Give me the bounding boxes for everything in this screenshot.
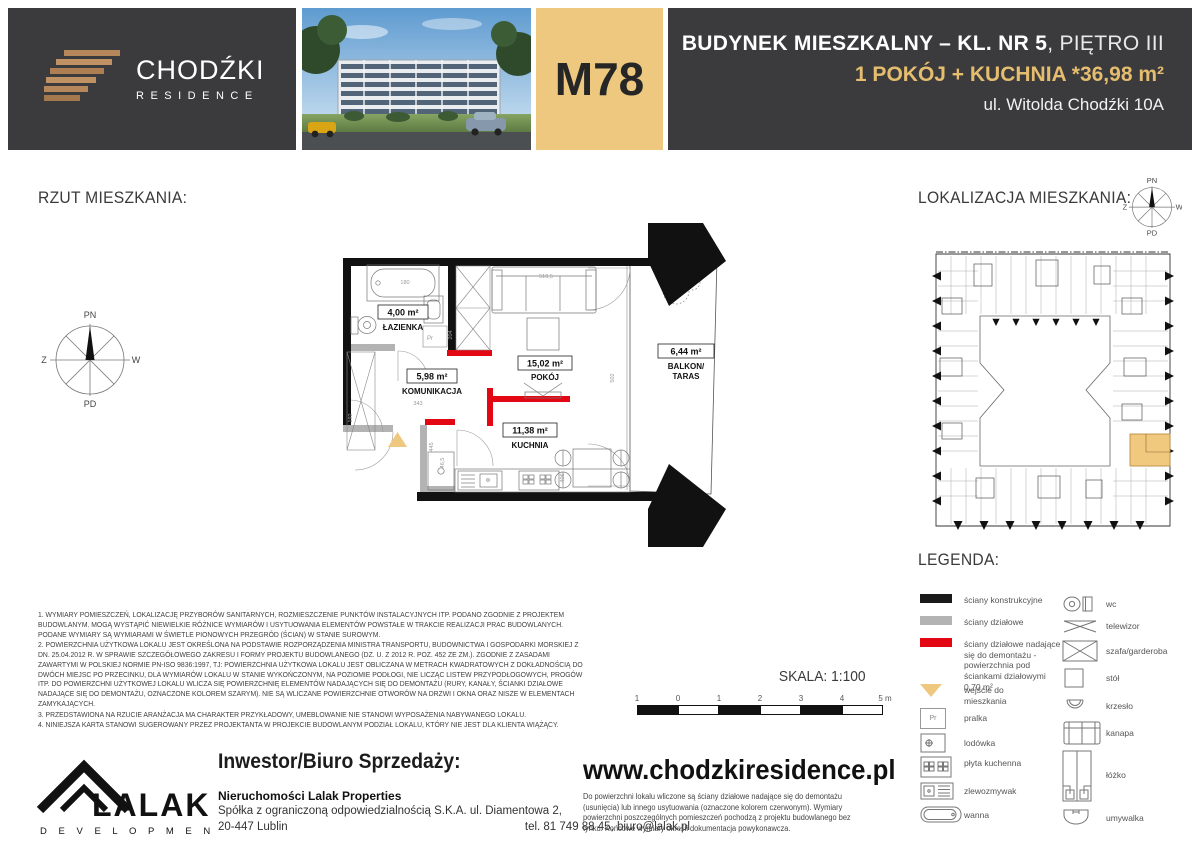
svg-text:406: 406	[560, 473, 566, 482]
compass-needle	[86, 326, 95, 360]
kitchen-counter	[455, 469, 630, 492]
compass-north-label: PN	[1147, 176, 1157, 185]
wc-icon	[1062, 594, 1106, 614]
svg-text:46,5: 46,5	[440, 458, 446, 469]
scale-tick: 3	[799, 694, 803, 703]
note-3: 3. PRZEDSTAWIONA NA RZUCIE ARANŻACJA MA …	[38, 710, 590, 720]
cooktop-icon	[519, 471, 559, 490]
svg-text:5,98 m²: 5,98 m²	[416, 372, 447, 382]
svg-text:4,00 m²: 4,00 m²	[387, 308, 418, 318]
compass-east-label: W	[1176, 202, 1182, 211]
svg-text:BALKON/: BALKON/	[668, 362, 705, 371]
scale-tick: 4	[840, 694, 844, 703]
legend-item: krzesło	[1062, 696, 1192, 716]
plan-section-title: RZUT MIESZKANIA:	[38, 188, 187, 208]
wardrobe-icon	[1062, 640, 1106, 662]
kitchen-fixtures	[428, 449, 630, 492]
compass-south-label: PD	[1147, 228, 1158, 236]
legend-item: kanapa	[1062, 720, 1192, 746]
investor-city: 20-447 Lublin	[218, 821, 288, 833]
svg-text:343: 343	[413, 401, 422, 407]
entrance-marker	[388, 432, 407, 447]
compass-west-label: Z	[41, 355, 47, 365]
washer-label: Pr	[427, 336, 433, 342]
investor-address: Spółka z ograniczoną odpowiedzialnością …	[218, 805, 562, 817]
building-title-bold: BUDYNEK MIESZKALNY – KL. NR 5	[682, 32, 1047, 55]
svg-text:192: 192	[348, 413, 354, 422]
floor-plan: Pr	[338, 214, 740, 558]
svg-text:204: 204	[448, 330, 454, 339]
note-1: 1. WYMIARY POMIESZCZEŃ, LOKALIZACJĘ PRZY…	[38, 610, 590, 639]
legend-item: telewizor	[1062, 618, 1192, 635]
header-title-block: BUDYNEK MIESZKALNY – KL. NR 5, PIĘTRO II…	[668, 8, 1192, 150]
svg-text:KOMUNIKACJA: KOMUNIKACJA	[402, 387, 462, 396]
legend-item: wejście do mieszkania	[920, 684, 1060, 706]
svg-text:TARAS: TARAS	[673, 372, 701, 381]
apartment-card-page: CHODŹKI RESIDENCE	[0, 0, 1200, 848]
wall-partition-swatch	[920, 616, 964, 625]
brand-text: CHODŹKI RESIDENCE	[136, 57, 265, 102]
svg-text:510,5: 510,5	[539, 274, 553, 280]
legend-item: stół	[1062, 668, 1192, 688]
legend-item: Pr pralka	[920, 708, 1060, 729]
compass-north-label: PN	[84, 310, 97, 320]
table-icon	[527, 318, 559, 350]
location-plan	[918, 238, 1188, 538]
svg-text:502: 502	[610, 373, 616, 382]
website-note: Do powierzchni lokalu wliczone są ściany…	[583, 792, 868, 834]
legend-item: ściany konstrukcyjne	[920, 594, 1060, 606]
highlighted-unit	[1130, 434, 1170, 466]
entrance-icon	[920, 684, 964, 697]
wall-structural-swatch	[920, 594, 964, 603]
investor-company: Nieruchomości Lalak Properties	[218, 789, 401, 803]
svg-text:11,38 m²: 11,38 m²	[512, 426, 548, 436]
bathtub-icon	[920, 806, 964, 823]
table-icon	[1062, 668, 1106, 688]
brand-title: CHODŹKI	[136, 57, 265, 84]
svg-text:15,02 m²: 15,02 m²	[527, 359, 563, 369]
legend-item: zlewozmywak	[920, 782, 1060, 800]
dining-table-icon	[573, 449, 611, 487]
scale-bar: 1 0 1 2 3 4 5 m	[637, 694, 897, 720]
compass-east-label: W	[132, 355, 141, 365]
svg-text:445: 445	[429, 442, 435, 451]
legend-item: wc	[1062, 594, 1192, 614]
cooktop-icon	[920, 756, 964, 778]
svg-text:KUCHNIA: KUCHNIA	[512, 441, 549, 450]
fridge-icon	[920, 733, 964, 753]
compass-south-label: PD	[84, 399, 97, 409]
washer-icon: Pr	[920, 708, 964, 729]
sink-icon	[920, 782, 964, 800]
svg-text:6,44 m²: 6,44 m²	[670, 347, 701, 357]
svg-text:ŁAZIENKA: ŁAZIENKA	[383, 323, 424, 332]
unit-code: M78	[555, 52, 644, 106]
tv-icon	[1062, 618, 1106, 635]
bed-icon	[1062, 750, 1106, 802]
legend-item: ściany działowe	[920, 616, 1060, 628]
compass-rose: PN PD Z W	[38, 306, 142, 410]
developer-logo: LALAK D E V E L O P M E N T	[36, 758, 216, 842]
developer-logo-subtext: D E V E L O P M E N T	[40, 826, 216, 837]
building-photo	[302, 8, 531, 150]
compass-west-label: Z	[1123, 202, 1128, 211]
scale-tick: 1	[717, 694, 721, 703]
legend-item: łóżko	[1062, 750, 1192, 802]
scale-tick: 2	[758, 694, 762, 703]
legend-title: LEGENDA:	[918, 550, 999, 570]
legend-item: wanna	[920, 806, 1060, 823]
scale-tick: 5 m	[878, 694, 891, 703]
courtyard	[980, 316, 1110, 466]
unit-summary: 1 POKÓJ + KUCHNIA *36,98 m²	[668, 63, 1164, 87]
website-url: www.chodzkiresidence.pl	[583, 754, 896, 786]
brand-logo-block: CHODŹKI RESIDENCE	[8, 8, 296, 150]
wardrobes	[347, 266, 490, 450]
scale-tick: 0	[676, 694, 680, 703]
location-compass-rose: PN PD Z W	[1122, 176, 1182, 236]
sofa-icon	[1062, 720, 1106, 746]
brand-subtitle: RESIDENCE	[136, 90, 265, 102]
scale-label: SKALA: 1:100	[700, 668, 866, 685]
location-section-title: LOKALIZACJA MIESZKANIA:	[918, 188, 1131, 208]
note-4: 4. NINIEJSZA KARTA STANOWI SUGEROWANY PR…	[38, 720, 590, 730]
svg-text:POKÓJ: POKÓJ	[531, 373, 559, 382]
building-title-light: , PIĘTRO III	[1047, 32, 1164, 55]
legend-item: szafa/garderoba	[1062, 640, 1197, 662]
svg-text:180: 180	[400, 280, 409, 286]
investor-heading: Inwestor/Biuro Sprzedaży:	[218, 750, 461, 774]
washbasin-icon	[1062, 808, 1106, 826]
scale-tick: 1	[635, 694, 639, 703]
brand-logo-icon	[34, 46, 126, 112]
chair-icon	[1062, 696, 1106, 716]
note-2: 2. POWIERZCHNIA UŻYTKOWA LOKALU JEST OKR…	[38, 640, 590, 708]
wc-icon	[351, 317, 358, 334]
legend-item: lodówka	[920, 733, 1060, 753]
unit-number-tile: M78	[536, 8, 663, 150]
building-title: BUDYNEK MIESZKALNY – KL. NR 5, PIĘTRO II…	[668, 32, 1164, 56]
legal-notes: 1. WYMIARY POMIESZCZEŃ, LOKALIZACJĘ PRZY…	[38, 610, 590, 731]
tv-icon	[524, 383, 543, 396]
developer-logo-text: LALAK	[92, 787, 210, 823]
wall-removable-swatch	[920, 638, 964, 647]
street-address: ul. Witolda Chodźki 10A	[668, 95, 1164, 115]
legend-item: umywalka	[1062, 808, 1192, 826]
legend-item: płyta kuchenna	[920, 756, 1060, 778]
